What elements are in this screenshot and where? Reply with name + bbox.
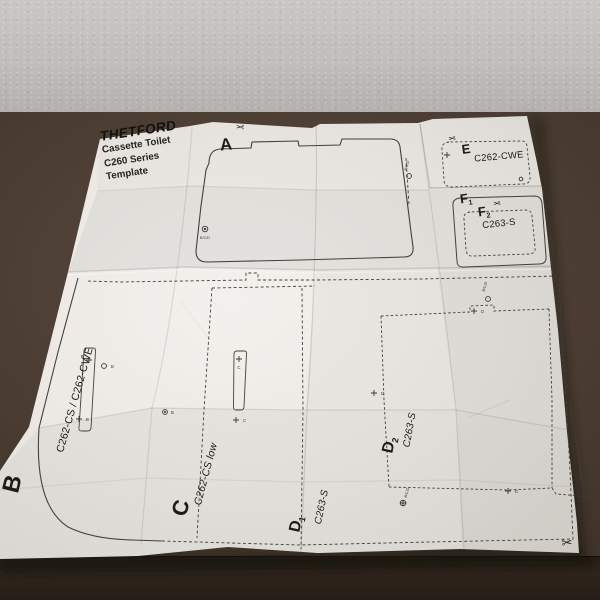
svg-text:B/C/D: B/C/D (200, 236, 210, 240)
section-d2-label: D2 (379, 435, 400, 455)
paper-sheet: B/C/D B/C/D B B B B C C B/C/D (0, 116, 592, 559)
section-d1-label: D1 (286, 514, 307, 534)
scissors-icon: ✂ (493, 198, 502, 210)
section-a-label: A (219, 135, 233, 156)
template-sheet-graphics: B/C/D B/C/D B B B B C C B/C/D (0, 0, 600, 600)
svg-text:D: D (515, 489, 518, 494)
svg-text:B: B (171, 410, 174, 415)
brand-block: THETFORD Cassette Toilet C260 Series Tem… (99, 118, 183, 184)
svg-text:C: C (243, 418, 246, 423)
svg-text:B: B (111, 364, 114, 369)
scissors-icon: ✂ (561, 535, 573, 552)
section-f1-label: F1 (459, 190, 473, 208)
scissors-icon: ✂ (236, 122, 245, 133)
svg-text:D: D (481, 309, 484, 314)
photo-scene: B/C/D B/C/D B B B B C C B/C/D (0, 0, 600, 600)
svg-text:B: B (86, 417, 89, 422)
svg-text:D: D (381, 391, 384, 396)
section-e-label: E (461, 141, 472, 157)
scissors-icon: ✂ (448, 133, 457, 145)
fold-shading (0, 116, 583, 559)
svg-text:C: C (237, 365, 240, 370)
section-f2-label: F2 (477, 203, 491, 221)
